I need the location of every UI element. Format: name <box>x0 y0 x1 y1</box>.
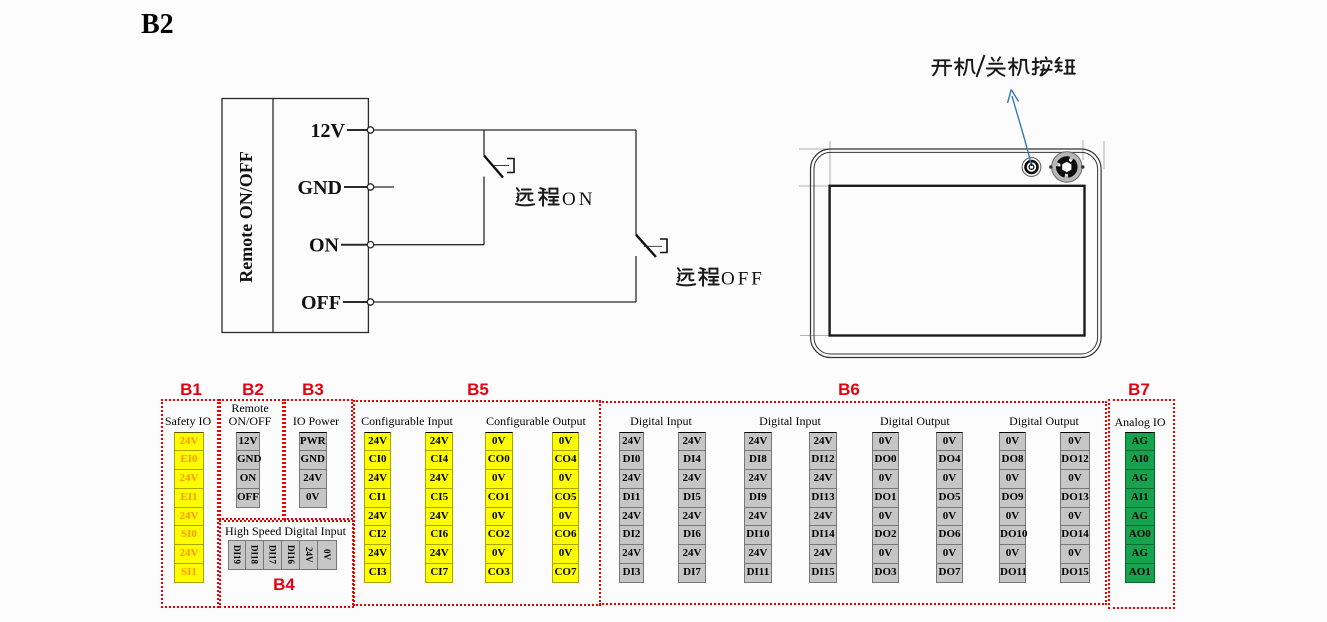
svg-text:GND: GND <box>298 177 342 199</box>
svg-text:12V: 12V <box>311 120 346 142</box>
svg-text:OFF: OFF <box>301 292 341 314</box>
svg-text:ON: ON <box>309 235 340 257</box>
svg-text:Remote ON/OFF: Remote ON/OFF <box>236 151 256 282</box>
svg-text:ON: ON <box>562 189 595 210</box>
svg-text:OFF: OFF <box>721 269 765 290</box>
